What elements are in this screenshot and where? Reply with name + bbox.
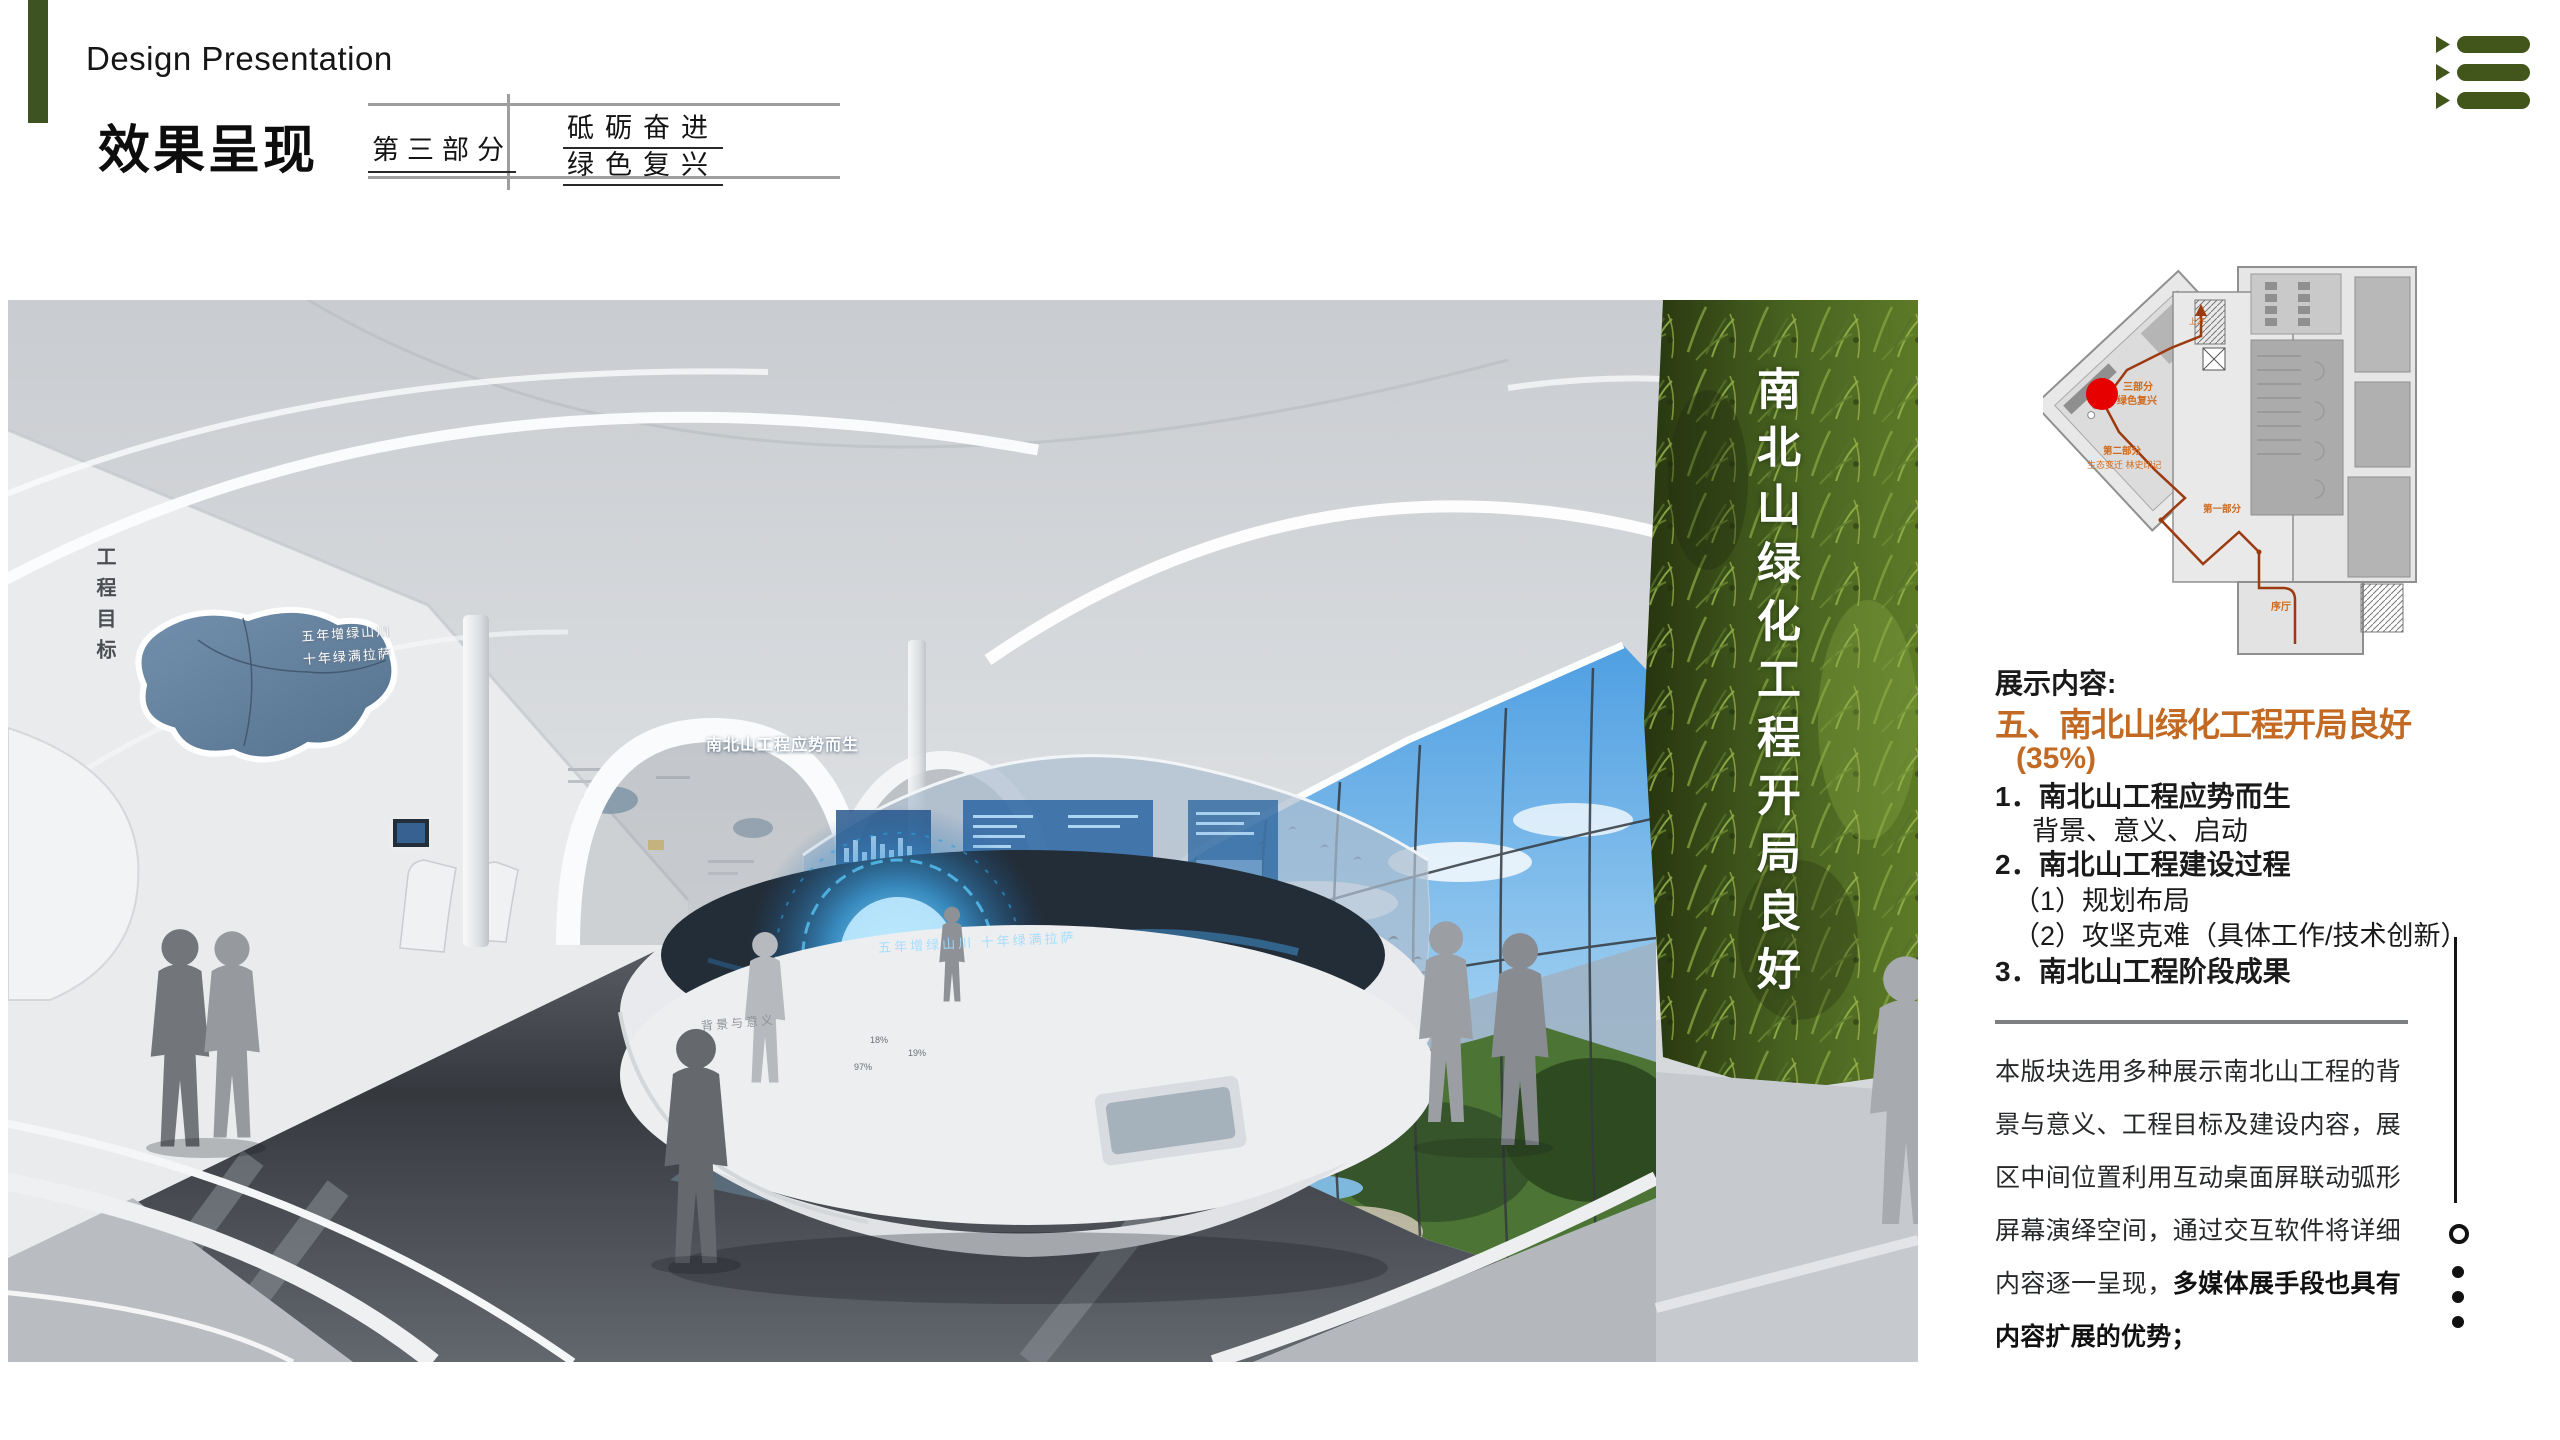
outline-item-2-sub2: （2）攻坚克难（具体工作/技术创新）: [2013, 914, 2468, 953]
slide-nav-dot-2[interactable]: [2452, 1291, 2464, 1303]
slide-nav-dot-1[interactable]: [2452, 1266, 2464, 1278]
part-number-label: 第三部分: [368, 128, 516, 173]
screen-title: 南北山工程应势而生: [706, 731, 859, 755]
slide-nav-dot-3[interactable]: [2452, 1316, 2464, 1328]
plan-label-part1: 第一部分: [2203, 503, 2242, 515]
outline-item-2: 2．南北山工程建设过程: [1995, 843, 2291, 883]
plan-label-stairs: 上2F: [2189, 317, 2206, 326]
outline-item-2-sub1: （1）规划布局: [2013, 879, 2190, 918]
section-percent: (35%): [2016, 742, 2096, 776]
table-mark-18: 18%: [870, 1035, 888, 1045]
green-wall-vertical-text: 南北山绿化工程开局良好: [1742, 366, 1806, 1004]
rendering-scene: [8, 300, 1918, 1362]
table-mark-97: 97%: [854, 1062, 872, 1072]
page-title-en: Design Presentation: [86, 40, 393, 78]
current-location-marker: [2086, 378, 2118, 410]
elevator: [2203, 348, 2225, 370]
exhibition-hall-rendering: 工程目标 五年增绿山川 十年绿满拉萨 南北山工程应势而生 五年增绿山川 十年绿满…: [8, 300, 1918, 1362]
wall-vertical-text-goal: 工程目标: [90, 546, 119, 670]
page-title-cn: 效果呈现: [98, 108, 318, 183]
part-slogan-line2: 绿色复兴: [563, 143, 723, 186]
plan-label-part2-line1: 第二部分: [2103, 445, 2142, 457]
list-menu-icon[interactable]: [2436, 36, 2536, 116]
plan-label-hall: 序厅: [2271, 600, 2291, 613]
presentation-slide: { "slide": { "title_en": "Design Present…: [0, 0, 2560, 1440]
section-title: 五、南北山绿化工程开局良好: [1995, 698, 2411, 746]
content-divider: [1995, 1020, 2408, 1024]
accent-green-bar: [28, 0, 48, 123]
table-mark-19: 19%: [908, 1048, 926, 1058]
plan-label-part2-line2: 生态变迁 林史印记: [2087, 459, 2162, 470]
description-normal: 本版块选用多种展示南北山工程的背景与意义、工程目标及建设内容，展区中间位置利用互…: [1995, 1058, 2401, 1298]
description-paragraph: 本版块选用多种展示南北山工程的背景与意义、工程目标及建设内容，展区中间位置利用互…: [1995, 1046, 2401, 1364]
plan-label-part3-line2: 绿色复兴: [2117, 394, 2157, 407]
edge-accent-line: [2454, 937, 2457, 1203]
plan-label-part3-line1: 三部分: [2123, 380, 2153, 393]
wall-slogan: 五年增绿山川 十年绿满拉萨: [301, 619, 394, 671]
outline-item-3: 3．南北山工程阶段成果: [1995, 950, 2291, 990]
floor-plan: 三部分 绿色复兴 第二部分 生态变迁 林史印记 第一部分 序厅 上2F: [2043, 252, 2431, 662]
slide-nav-current[interactable]: [2449, 1224, 2469, 1244]
content-heading: 展示内容:: [1995, 662, 2116, 702]
